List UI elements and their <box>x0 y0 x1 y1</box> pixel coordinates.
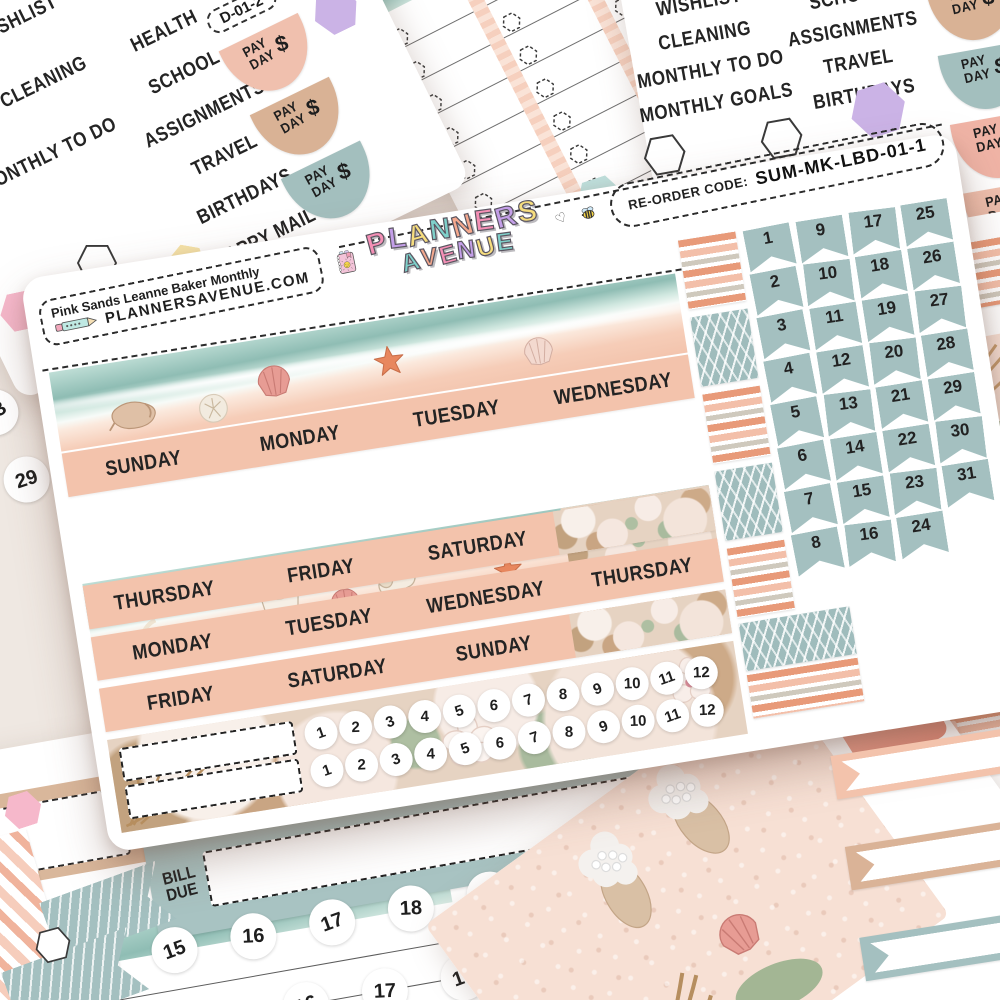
date-flag: 27 <box>915 286 967 333</box>
date-circle: 9 <box>583 706 625 748</box>
reorder-code-label: RE-ORDER CODE: <box>627 173 749 212</box>
date-flag: 2 <box>749 266 803 316</box>
payday-text: PAYDAY <box>972 121 1000 155</box>
payday-text: PAYDAY <box>272 99 309 137</box>
date-circle: 17 <box>361 967 409 1000</box>
payday-line2: DAY <box>951 0 980 18</box>
logo-letter: S <box>516 196 541 228</box>
date-circle: 29 <box>0 451 56 509</box>
date-flag: 29 <box>928 372 981 421</box>
logo-letter: E <box>495 229 517 256</box>
date-circle: 16 <box>229 912 277 960</box>
date-flag: 7 <box>784 483 838 533</box>
date-circle: 9 <box>577 668 619 710</box>
palm-frond-icon <box>570 960 750 1000</box>
date-circle: 6 <box>483 726 517 760</box>
date-flag: 20 <box>869 337 921 384</box>
date-flag: 22 <box>882 424 935 473</box>
washi-strip-stripes <box>727 540 795 618</box>
category-label: WISHLIST <box>0 0 61 49</box>
dollar-symbol: $ <box>982 0 995 11</box>
scallop-shell-icon <box>252 361 295 401</box>
category-label: HEALTH <box>127 5 201 57</box>
date-flag: 12 <box>816 345 869 394</box>
reorder-code-value: SUM-MK-LBD-01-1 <box>753 134 928 189</box>
category-label: TRAVEL <box>822 44 895 79</box>
category-label: SCHOOL <box>145 45 224 100</box>
payday-text: PAYDAY <box>303 162 340 200</box>
category-label: ASSIGNMENTS <box>786 6 919 52</box>
washi-strip-stripes <box>678 232 746 310</box>
category-label: WISHLIST <box>654 0 743 22</box>
payday-sticker: PAYDAY$ <box>926 0 1000 47</box>
hexagon-sticker-purple <box>306 0 366 40</box>
date-flag: 24 <box>896 511 949 560</box>
date-circle: 4 <box>414 737 448 771</box>
date-flag: 3 <box>756 309 810 359</box>
sand-dollar-icon <box>196 391 230 425</box>
date-flag: 11 <box>809 302 862 351</box>
scallop-shell-icon <box>707 902 771 964</box>
date-flag-grid: 1917252101826311192741220285132129614223… <box>743 197 1000 578</box>
payday-line2: DAY <box>975 136 1000 156</box>
bee-icon <box>578 196 600 229</box>
payday-text: PAYDAY <box>241 35 278 73</box>
date-flag: 6 <box>777 440 831 490</box>
date-circle: 1 <box>306 750 348 792</box>
date-flag: 15 <box>837 475 890 524</box>
date-circle: 4 <box>408 699 442 733</box>
date-flag: 19 <box>862 293 915 342</box>
date-flag: 1 <box>743 222 797 272</box>
scallop-shell-icon <box>519 333 557 368</box>
planner-notebook-icon <box>329 231 361 294</box>
date-circle: 12 <box>684 656 718 690</box>
washi-strip-rope <box>715 463 783 541</box>
date-circle: 2 <box>345 748 379 782</box>
date-circle: 10 <box>615 667 649 701</box>
date-flag: 25 <box>900 198 953 247</box>
payday-line2: DAY <box>963 67 992 87</box>
date-circle: 2 <box>339 710 373 744</box>
date-flag: 17 <box>848 207 900 254</box>
pearl-sandal-icon <box>563 818 672 944</box>
sticker-kit-product-photo: WISHLISTCLEANINGMONTHLY TO DO HEALTHSCHO… <box>0 0 1000 1000</box>
heart-doodle-icon: ♡ <box>552 209 570 229</box>
date-flag: 10 <box>803 259 855 306</box>
date-flag: 13 <box>824 389 876 436</box>
date-flag: 30 <box>935 416 987 463</box>
date-flag: 28 <box>921 328 974 377</box>
date-circle: 7 <box>508 679 550 721</box>
date-flag: 8 <box>791 526 845 576</box>
payday-text: PAYDAY <box>960 53 992 87</box>
washi-strip-rope <box>690 309 758 387</box>
date-flag: 4 <box>763 353 817 403</box>
category-label: TRAVEL <box>188 129 262 181</box>
date-flag: 21 <box>875 380 928 429</box>
dollar-symbol: $ <box>994 53 1000 79</box>
pearl-sandal-icon <box>631 749 750 872</box>
date-circle: 8 <box>546 678 580 712</box>
date-flag <box>948 502 1000 551</box>
date-circle: 7 <box>513 717 555 759</box>
date-circle: 6 <box>477 689 511 723</box>
conch-shell-icon <box>104 392 161 436</box>
washi-strip-stripes <box>702 386 770 464</box>
date-flag: 26 <box>907 241 960 290</box>
date-flag: 18 <box>855 250 908 299</box>
date-circle: 10 <box>621 704 655 738</box>
date-circle: 3 <box>375 739 417 781</box>
date-flag: 31 <box>941 459 994 508</box>
bill-due-label: BILLDUE <box>161 864 201 905</box>
payday-sticker: PAYDAY$ <box>938 41 1000 116</box>
date-circle: 8 <box>552 715 586 749</box>
date-circle: 1 <box>300 712 342 754</box>
date-circle: 12 <box>690 693 724 727</box>
date-flag: 16 <box>844 520 896 567</box>
date-circle: 11 <box>652 695 694 737</box>
date-flag: 5 <box>770 396 824 446</box>
date-flag: 23 <box>890 468 942 515</box>
starfish-icon <box>371 343 408 380</box>
category-label: CLEANING <box>657 16 753 55</box>
date-flag: 9 <box>795 215 848 264</box>
date-circle: 3 <box>369 701 411 743</box>
date-flag: 14 <box>830 432 883 481</box>
payday-text: PAYDAY <box>948 0 980 18</box>
